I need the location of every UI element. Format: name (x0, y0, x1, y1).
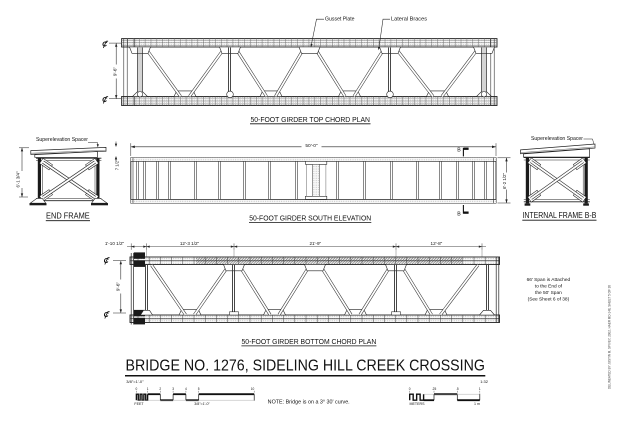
svg-text:NOTE: Bridge is on a 3° 30' cu: NOTE: Bridge is on a 3° 30' curve. (268, 399, 350, 405)
svg-text:0: 0 (136, 387, 138, 391)
svg-text:0: 0 (409, 387, 411, 391)
svg-text:B: B (457, 211, 461, 217)
svg-text:1: 1 (147, 387, 149, 391)
svg-text:the 50' Span: the 50' Span (535, 290, 562, 296)
svg-text:3: 3 (172, 387, 174, 391)
svg-text:3/8"=1'-0": 3/8"=1'-0" (194, 402, 210, 406)
svg-text:INTERNAL FRAME B-B: INTERNAL FRAME B-B (522, 210, 596, 220)
svg-text:Superelevation Spacer: Superelevation Spacer (36, 137, 88, 143)
svg-text:1:32: 1:32 (480, 379, 489, 384)
svg-text:10: 10 (251, 387, 255, 391)
svg-text:METERS: METERS (410, 402, 426, 406)
svg-text:50-FOOT GIRDER TOP CHORD PLAN: 50-FOOT GIRDER TOP CHORD PLAN (250, 115, 370, 124)
svg-text:BRIDGE NO. 1276, SIDELING HILL: BRIDGE NO. 1276, SIDELING HILL CREEK CRO… (126, 358, 485, 375)
svg-text:END FRAME: END FRAME (46, 211, 90, 221)
svg-text:50-FOOT GIRDER BOTTOM CHORD PL: 50-FOOT GIRDER BOTTOM CHORD PLAN (242, 337, 377, 346)
svg-text:9'-6": 9'-6" (115, 282, 120, 292)
svg-text:4: 4 (185, 387, 187, 391)
svg-text:(See Sheet 6 of 38): (See Sheet 6 of 38) (528, 297, 570, 303)
svg-text:1: 1 (479, 387, 481, 391)
svg-text:1 m: 1 m (474, 402, 480, 406)
svg-text:2: 2 (159, 387, 161, 391)
svg-text:.25: .25 (432, 387, 437, 391)
svg-text:DELINEATED BY JUSTIN M. SPIVEY: DELINEATED BY JUSTIN M. SPIVEY, 2002. HA… (608, 285, 612, 389)
svg-text:1'-10 1/2": 1'-10 1/2" (105, 241, 125, 246)
svg-text:3/8"=1'-0": 3/8"=1'-0" (126, 379, 144, 384)
svg-text:7 1/2": 7 1/2" (115, 159, 120, 170)
svg-text:to the End of: to the End of (535, 284, 563, 290)
svg-text:Lateral Braces: Lateral Braces (391, 17, 428, 23)
svg-text:66' Span is Attached: 66' Span is Attached (527, 277, 571, 283)
svg-text:FEET: FEET (134, 402, 144, 406)
svg-text:B: B (457, 148, 461, 154)
svg-text:.5: .5 (456, 387, 459, 391)
svg-text:9'-6": 9'-6" (112, 67, 117, 77)
svg-text:21'-9": 21'-9" (309, 241, 321, 246)
svg-text:5: 5 (198, 387, 200, 391)
svg-text:50'-0": 50'-0" (305, 143, 318, 149)
svg-text:50-FOOT GIRDER SOUTH ELEVATION: 50-FOOT GIRDER SOUTH ELEVATION (249, 214, 371, 223)
svg-text:6'-1 3/4": 6'-1 3/4" (16, 171, 21, 188)
svg-text:6'-2 1/2": 6'-2 1/2" (502, 173, 507, 190)
svg-text:12'-3 1/2": 12'-3 1/2" (180, 241, 200, 246)
svg-text:Superelevation Spacer: Superelevation Spacer (531, 136, 583, 142)
svg-text:12'-8": 12'-8" (431, 241, 443, 246)
svg-text:Gusset Plate: Gusset Plate (325, 17, 355, 23)
